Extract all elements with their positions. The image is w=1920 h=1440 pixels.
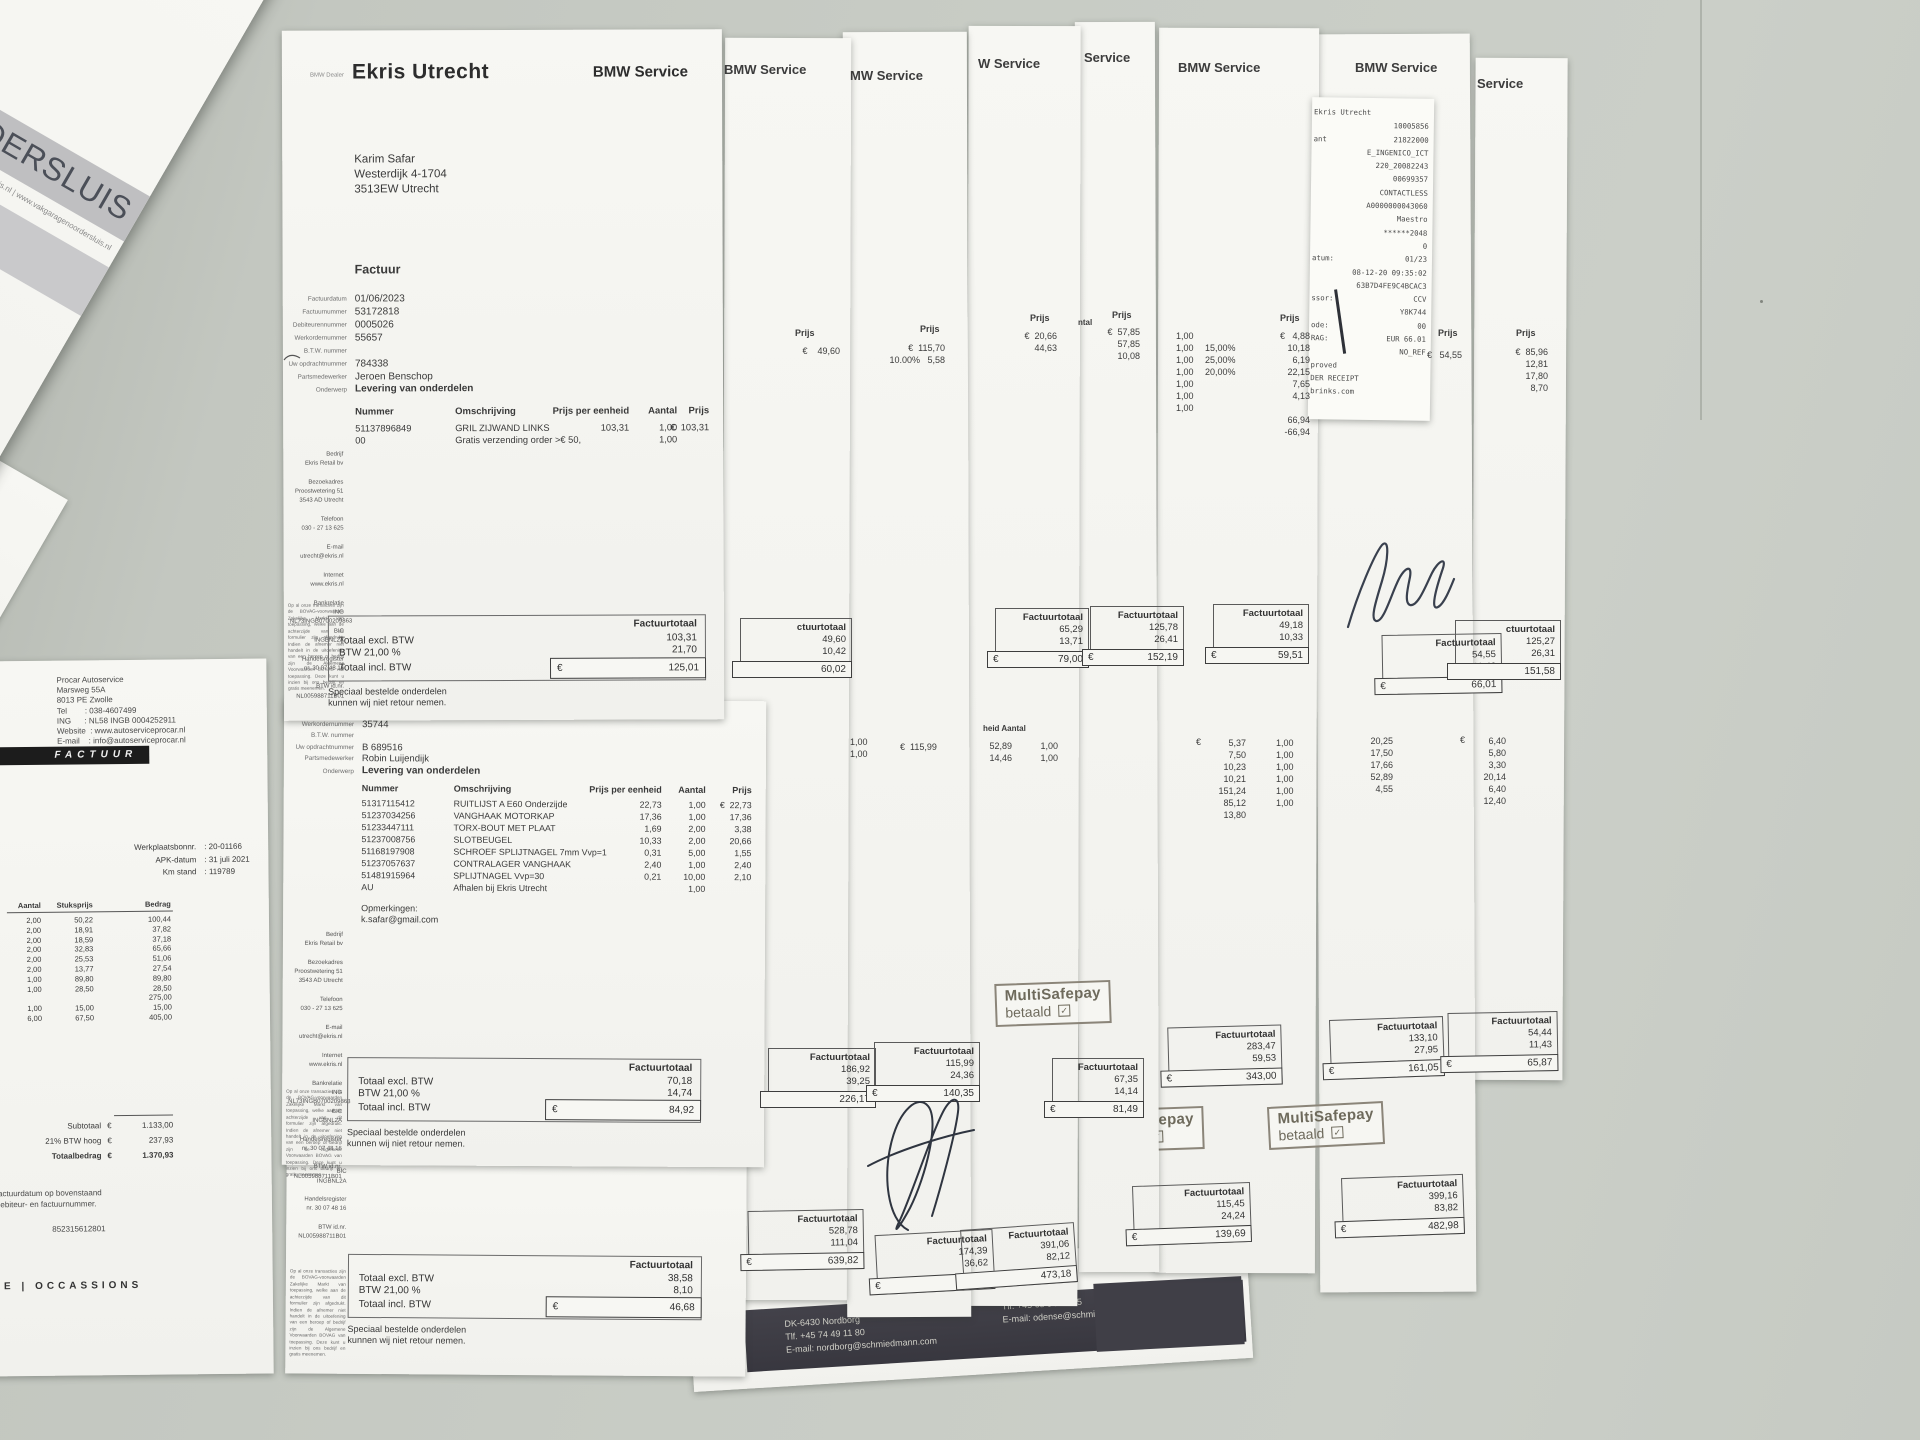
qty-column-g: 1,00 1,00 1,00 1,00 1,00 1,00: [1276, 737, 1294, 809]
ekris-invoice-3: NL73INGB0700209863 BIC INGBNL2A Handelsr…: [285, 1148, 747, 1376]
procar-btw-value: 237,93: [113, 1136, 173, 1146]
receipt-pen-stroke: [1331, 287, 1350, 357]
mid-values-d: 52,89 14,46: [970, 740, 1012, 764]
excl-label: Totaal excl. BTW: [339, 635, 414, 646]
procar-field-labels: Werkplaatsbonnr. APK-datum Km stand: [96, 841, 196, 880]
bmw-service-header-h: Service: [1477, 76, 1523, 91]
excl-value: 103,31: [627, 632, 697, 643]
prijs-values-h: € 85,96 12,81 17,80 8,70: [1490, 346, 1548, 394]
item-unitprices: 103,31: [547, 422, 629, 434]
mid-euro-f: €: [1196, 737, 1201, 747]
bmw-service-header-e: Service: [1084, 50, 1130, 65]
customer-address: Karim Safar Westerdijk 4-1704 3513EW Utr…: [354, 152, 447, 197]
multisafepay-stamp-1: MultiSafepay betaald✓: [994, 980, 1112, 1027]
procar-field-values: : 20-01166 : 31 juli 2021 : 119789: [204, 841, 250, 879]
mid-values-h: 6,40 5,80 3,30 20,14 6,40 12,40: [1462, 735, 1506, 807]
btw-label: BTW 21,00 %: [358, 1088, 420, 1099]
excl-label: Totaal excl. BTW: [358, 1076, 433, 1087]
factuurtotaal-box-d2: Factuurtotaal 67,35 14,14 €81,49: [1052, 1058, 1144, 1118]
procar-subtotal-rule: [114, 1115, 173, 1117]
procar-invoice: Procar Autoservice Marsweg 55A 8013 PE Z…: [0, 659, 274, 1377]
incl-total-value: 125,01: [668, 662, 699, 673]
factuur-banner-label: FACTUUR: [54, 749, 137, 761]
procar-col-aantal: Aantal: [7, 901, 41, 910]
prijs-label-h: Prijs: [1516, 328, 1536, 338]
procar-header: Procar Autoservice Marsweg 55A 8013 PE Z…: [56, 674, 185, 747]
excl-value: 38,58: [623, 1273, 693, 1284]
payment-receipt: Ekris Utrecht ant atum: ssor: ode: RAG: …: [1308, 97, 1434, 421]
bmw-service-header-c: MW Service: [850, 68, 923, 83]
prijs-value-b: € 49,60: [772, 346, 840, 356]
col-prijs: Prijs: [665, 405, 709, 416]
bmw-service-header-d: W Service: [978, 56, 1040, 71]
euro-sign: €: [557, 663, 563, 674]
item-prices: € 22,73 17,36 3,38 20,66 1,55 2,40 2,10: [681, 799, 751, 883]
mid-label-d: heid Aantal: [983, 724, 1026, 733]
item-unitprices: 22,73 17,36 1,69 10,33 0,31 2,40 0,21: [583, 798, 661, 882]
col-eenheid: Prijs per eenheid: [547, 406, 629, 417]
multisafepay-stamp-3: MultiSafepay betaald✓: [1267, 1101, 1385, 1150]
checkbox-icon: ✓: [1331, 1126, 1344, 1139]
col-nummer: Nummer: [362, 783, 399, 793]
bmw-service-header-f: BMW Service: [1178, 60, 1260, 75]
checkbox-icon: ✓: [1058, 1004, 1070, 1016]
invoice2-onderwerp: Levering van onderdelen: [362, 765, 480, 777]
col-omschrijving: Omschrijving: [454, 784, 512, 794]
procar-subtotal-value: 1.133,00: [113, 1121, 173, 1131]
bmw-dealer-tag: BMW Dealer: [310, 73, 344, 79]
signature-large: [848, 1080, 978, 1240]
pen-mark: [282, 350, 302, 364]
invoice3-total-box: Factuurtotaal Totaal excl. BTW 38,58 BTW…: [348, 1254, 702, 1320]
euro-sign: €: [553, 1301, 559, 1312]
factuurtotaal-box-b1: ctuurtotaal 49,60 10,42 60,02: [740, 618, 852, 678]
prijs-values-d: € 20,66 44,63: [995, 330, 1057, 354]
mid-values-f: 5,37 7,50 10,23 10,21 151,24 85,12 13,80: [1206, 737, 1246, 821]
ekris-invoice-2: Debiteurennummer Werkordernummer B.T.W. …: [282, 699, 766, 1168]
bmw-service-header-g: BMW Service: [1355, 60, 1437, 75]
onderwerp-label: Onderwerp: [283, 384, 347, 397]
prijs-label-e: Prijs: [1112, 310, 1132, 320]
procar-subtotal-label: Subtotaal: [11, 1121, 101, 1131]
incl-total-cell: € 125,01: [550, 657, 706, 679]
prijs-label-b: Prijs: [795, 328, 815, 338]
procar-col-bedrag: Bedrag: [119, 900, 171, 910]
factuur-heading: Factuur: [355, 262, 401, 276]
ekris-invoice-1: BMW Dealer Ekris Utrecht BMW Service Kar…: [282, 29, 724, 721]
surface-speck-2: [1760, 300, 1763, 303]
procar-footer-text: CE | OCCASSIONS: [0, 1280, 142, 1293]
prijs-label-d: Prijs: [1030, 313, 1050, 323]
factuurtotaal-box-h2: Factuurtotaal 54,44 11,43 €65,87: [1447, 1011, 1558, 1073]
prijs-values-c: € 115,70 10.00% 5,58: [865, 342, 945, 366]
factuurtotaal-head: Factuurtotaal: [630, 1260, 693, 1271]
btw-value: 14,74: [622, 1088, 692, 1099]
procar-btw-label: 21% BTW hoog: [11, 1136, 101, 1146]
prijs-values-e: € 57,85 57,85 10,08: [1085, 326, 1140, 362]
procar-amount-column: 100,44 37,82 37,18 65,66 51,06 27,54 89,…: [119, 915, 172, 1023]
invoice-field-labels: Factuurdatum Factuurnummer Debiteurennum…: [283, 293, 347, 384]
retour-disclaimer: Speciaal bestelde onderdelen kunnen wij …: [347, 1127, 466, 1150]
paper-sheet-column-h: [1470, 58, 1567, 1080]
euro-sign: €: [552, 1104, 558, 1115]
qty-column-c: 1,00 1,00: [850, 736, 868, 760]
procar-col-stuksprijs: Stuksprijs: [45, 900, 93, 910]
signature-receipt: [1330, 515, 1460, 645]
invoice-total-box: Factuurtotaal Totaal excl. BTW 103,31 BT…: [328, 614, 706, 681]
item-numbers: 51317115412 51237034256 51233447111 5123…: [361, 797, 415, 893]
factuurtotaal-box-f3: Factuurtotaal 115,45 24,24 €139,69: [1132, 1182, 1252, 1246]
factuurtotaal-box-f1: Factuurtotaal 49,18 10,33 €59,51: [1213, 604, 1309, 664]
ekris-legal-text: Op al onze transacties zijn de BOVAG-voo…: [289, 1268, 346, 1358]
incl-total-cell: € 84,92: [545, 1099, 701, 1121]
incl-total-cell: € 46,68: [546, 1296, 702, 1318]
factuurtotaal-box-d1: Factuurtotaal 65,29 13,71 €79,00: [995, 608, 1089, 668]
procar-factuur-banner: FACTUUR: [0, 746, 149, 766]
factuurtotaal-head: Factuurtotaal: [634, 618, 697, 629]
procar-payment-note: factuurdatum op bovenstaand debiteur- en…: [0, 1187, 102, 1210]
factuurtotaal-box-g3: Factuurtotaal 399,16 83,82 €482,98: [1341, 1174, 1465, 1238]
col-nummer: Nummer: [355, 406, 394, 417]
btw-label: BTW 21,00 %: [339, 647, 401, 658]
procar-qty-column: 2,00 2,00 2,00 2,00 2,00 2,00 1,00 1,00 …: [7, 916, 42, 1024]
letterhead-band-1: RDERSLUIS: [0, 0, 150, 242]
retour-disclaimer: Speciaal bestelde onderdelen kunnen wij …: [328, 686, 447, 708]
photo-of-invoices: { "noordersluis": { "title_fragment": "R…: [0, 0, 1920, 1440]
factuurtotaal-box-h1: ctuurtotaal 125,27 26,31 151,58: [1455, 620, 1561, 680]
procar-subtotal-euro: €: [107, 1121, 112, 1130]
bmw-service-header-b: BMW Service: [724, 62, 806, 77]
opmerkingen: Opmerkingen: k.safar@gmail.com: [361, 903, 438, 925]
procar-total-euro: €: [107, 1151, 112, 1160]
invoice2-onderwerp-label: Onderwerp: [284, 765, 354, 778]
surface-seam: [1700, 0, 1702, 420]
prijs-label-c: Prijs: [920, 324, 940, 334]
col-prijs: Prijs: [712, 785, 752, 795]
factuurtotaal-head: Factuurtotaal: [629, 1063, 692, 1074]
retour-disclaimer: Speciaal bestelde onderdelen kunnen wij …: [347, 1324, 466, 1347]
item-prices: € 103,31: [633, 421, 709, 433]
col-omschrijving: Omschrijving: [455, 406, 516, 417]
incl-total-value: 84,92: [669, 1105, 694, 1116]
item-numbers: 51137896849 00: [355, 422, 411, 446]
invoice-field-values: 01/06/2023 53172818 0005026 55657 784338…: [355, 292, 433, 383]
mid-values-g: 20,25 17,50 17,66 52,89 4,55: [1345, 735, 1393, 795]
onderwerp-value: Levering van onderdelen: [355, 383, 473, 394]
prijs-value-g: € 54,55: [1400, 350, 1462, 360]
procar-total-label: Totaalbedrag: [11, 1151, 101, 1161]
qty-column-f: 1,00 1,00 1,00 1,00 1,00 1,00 1,00: [1176, 330, 1194, 414]
procar-table-rule: [7, 910, 173, 913]
mid-qty-d: 1,00 1,00: [1028, 740, 1058, 764]
btw-label: BTW 21,00 %: [359, 1285, 421, 1296]
invoice2-total-box: Factuurtotaal Totaal excl. BTW 70,18 BTW…: [347, 1057, 701, 1123]
factuurtotaal-box-f2: Factuurtotaal 283,47 59,53 €343,00: [1167, 1025, 1283, 1088]
noordersluis-title: RDERSLUIS: [0, 101, 138, 229]
incl-label: Totaal incl. BTW: [359, 1299, 431, 1311]
ekris-title: Ekris Utrecht: [352, 60, 489, 84]
ekris-legal-text: Op al onze transacties zijn de BOVAG-voo…: [286, 1089, 342, 1179]
btw-value: 21,70: [627, 644, 697, 655]
footer-bar-fragment: [1093, 1276, 1244, 1352]
incl-total-value: 46,68: [670, 1302, 695, 1313]
procar-btw-number: 852315612801: [52, 1224, 105, 1234]
factuurtotaal-box-b3: Factuurtotaal 528,78 111,04 €639,82: [747, 1209, 864, 1271]
col-eenheid: Prijs per eenheid: [584, 784, 662, 794]
prijs-label-f: Prijs: [1280, 313, 1300, 323]
discount-column-f: 15,00% 25,00% 20,00%: [1205, 342, 1236, 378]
procar-total-value: 1.370,93: [113, 1151, 173, 1161]
btw-value: 8,10: [623, 1285, 693, 1296]
excl-label: Totaal excl. BTW: [359, 1273, 434, 1285]
mid-value-c: € 115,99: [900, 742, 937, 752]
col-aantal: Aantal: [666, 785, 706, 795]
procar-unitprice-column: 50,22 18,91 18,59 32,83 25,53 13,77 89,8…: [45, 915, 94, 1023]
bmw-service-label: BMW Service: [593, 63, 688, 80]
excl-value: 70,18: [622, 1076, 692, 1087]
price-column-f: € 4,88 10,18 6,19 22,15 7,65 4,13 66,94 …: [1248, 330, 1310, 438]
factuurtotaal-box-g2: Factuurtotaal 133,10 27,95 €161,05: [1329, 1016, 1445, 1080]
incl-label: Totaal incl. BTW: [358, 1102, 430, 1113]
procar-btw-euro: €: [107, 1136, 112, 1145]
incl-label: Totaal incl. BTW: [339, 662, 411, 673]
prijs-label-g: Prijs: [1438, 328, 1458, 338]
factuurtotaal-box-e1: Factuurtotaal 125,78 26,41 €152,19: [1090, 606, 1184, 666]
